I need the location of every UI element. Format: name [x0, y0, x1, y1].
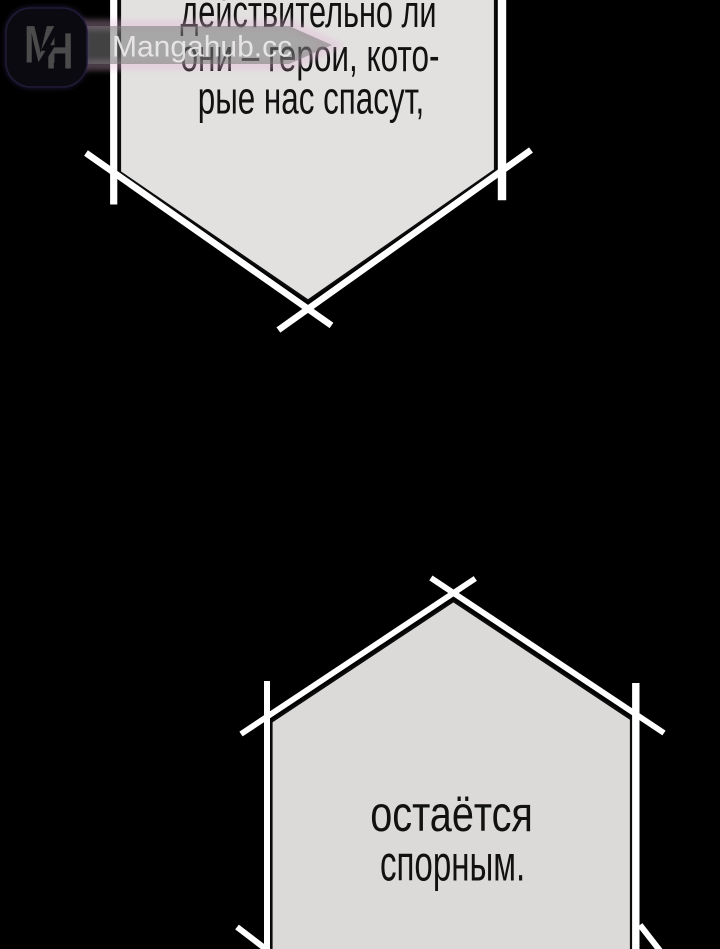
- svg-text:остаётся: остаётся: [370, 786, 533, 843]
- svg-text:спорным.: спорным.: [380, 836, 525, 891]
- svg-text:Mangahub.cc: Mangahub.cc: [112, 31, 292, 64]
- svg-text:рые нас спасут,: рые нас спасут,: [198, 74, 424, 124]
